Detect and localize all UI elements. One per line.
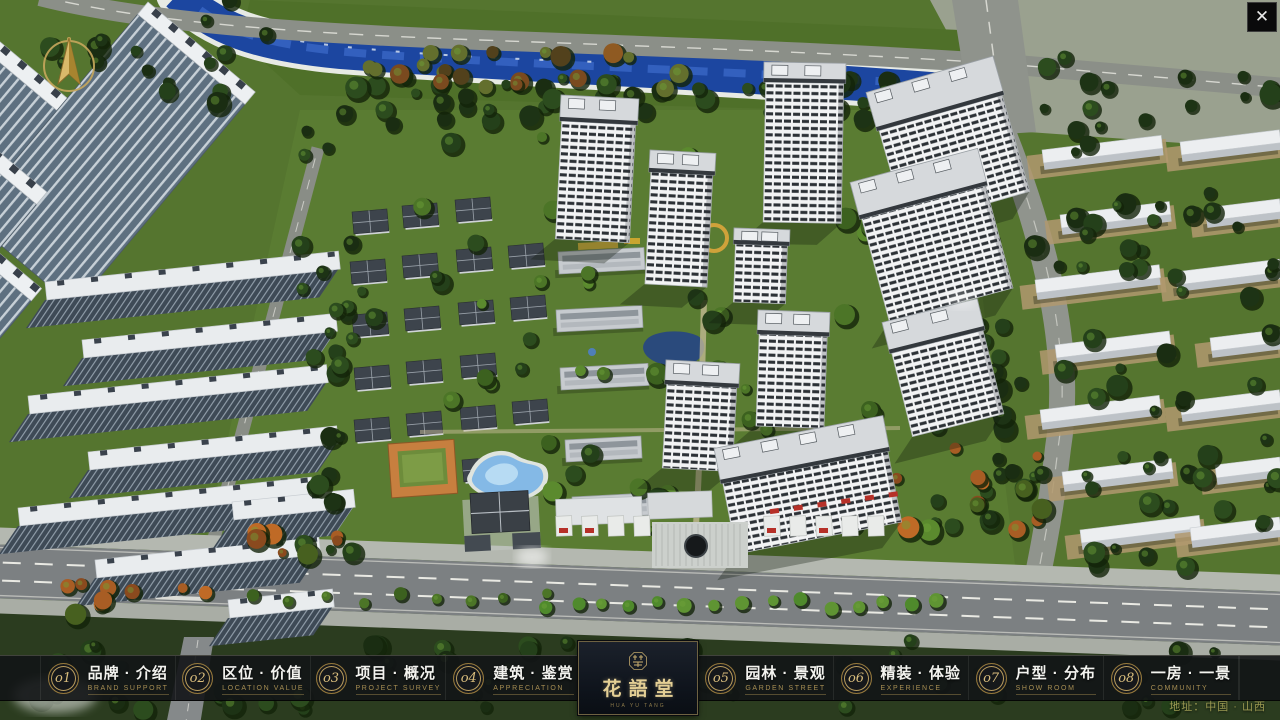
nav-item-garden[interactable]: o5 园林 · 景观 GARDEN STREET	[699, 656, 834, 700]
nav-sublabel: COMMUNITY	[1151, 685, 1231, 695]
nav-label: 精装 · 体验	[881, 662, 961, 683]
nav-number-badge: o4	[453, 663, 484, 694]
nav-item-project[interactable]: o3 项目 · 概况 PROJECT SURVEY	[311, 656, 446, 700]
nav-number-badge: o1	[48, 663, 79, 694]
nav-item-floorplan[interactable]: o7 户型 · 分布 SHOW ROOM	[969, 656, 1104, 700]
nav-item-architecture[interactable]: o4 建筑 · 鉴赏 APPRECIATION	[446, 656, 580, 700]
nav-item-location[interactable]: o2 区位 · 价值 LOCATION VALUE	[176, 656, 311, 700]
nav-number-badge: o6	[841, 663, 872, 694]
nav-number-badge: o7	[976, 663, 1007, 694]
nav-number-badge: o2	[182, 663, 213, 694]
nav-sublabel: BRAND SUPPORT	[88, 685, 169, 695]
nav-sublabel: EXPERIENCE	[881, 685, 961, 695]
nav-item-community[interactable]: o8 一房 · 一景 COMMUNITY	[1104, 656, 1239, 700]
brand-title: 花語堂	[602, 674, 680, 701]
nav-label: 建筑 · 鉴赏	[493, 662, 573, 683]
project-address: 地址：中国 · 山西	[1169, 698, 1266, 714]
nav-sublabel: PROJECT SURVEY	[356, 685, 442, 695]
nav-number-badge: o3	[316, 663, 347, 694]
nav-sublabel: GARDEN STREET	[745, 685, 825, 695]
nav-label: 区位 · 价值	[222, 662, 302, 683]
nav-item-interior[interactable]: o6 精装 · 体验 EXPERIENCE	[834, 656, 969, 700]
nav-sublabel: SHOW ROOM	[1016, 685, 1096, 695]
nav-sublabel: APPRECIATION	[493, 685, 573, 695]
nav-label: 项目 · 概况	[356, 662, 436, 683]
nav-number-badge: o5	[705, 663, 736, 694]
nav-number-badge: o8	[1111, 663, 1142, 694]
nav-item-brand[interactable]: o1 品牌 · 介绍 BRAND SUPPORT	[41, 656, 176, 700]
bar-spacer	[1239, 656, 1280, 700]
close-button[interactable]: ✕	[1247, 2, 1277, 32]
compass-icon	[34, 30, 104, 100]
masterplan-screen: ✕ o1 品牌 · 介绍 BRAND SUPPORT o2 区位 · 价值 LO…	[0, 0, 1280, 720]
nav-label: 一房 · 一景	[1151, 662, 1231, 683]
nav-sublabel: LOCATION VALUE	[222, 685, 304, 695]
brand-seal-icon	[626, 649, 650, 673]
bar-spacer	[0, 656, 41, 700]
nav-label: 园林 · 景观	[745, 662, 825, 683]
nav-label: 品牌 · 介绍	[88, 662, 168, 683]
masterplan-render	[0, 0, 1280, 720]
brand-logo-plaque[interactable]: 花語堂 HUA YU TANG	[578, 641, 698, 715]
nav-label: 户型 · 分布	[1016, 662, 1096, 683]
brand-subtitle: HUA YU TANG	[610, 703, 665, 709]
